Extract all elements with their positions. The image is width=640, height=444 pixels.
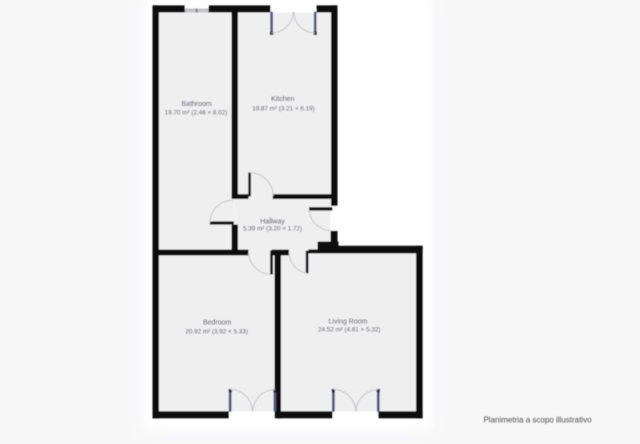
svg-text:Bathroom: Bathroom (181, 101, 212, 108)
svg-text:19.70 m² (2.46 × 8.02): 19.70 m² (2.46 × 8.02) (165, 110, 227, 117)
svg-text:24.52 m² (4.61 × 5.32): 24.52 m² (4.61 × 5.32) (318, 326, 380, 333)
svg-text:5.39 m² (3.20 × 1.72): 5.39 m² (3.20 × 1.72) (243, 226, 302, 233)
svg-text:Living Room: Living Room (329, 319, 368, 326)
svg-text:20.92 m² (3.92 × 5.33): 20.92 m² (3.92 × 5.33) (185, 329, 247, 336)
svg-text:Hallway: Hallway (260, 218, 285, 225)
svg-text:Planimetria a scopo illustrati: Planimetria a scopo illustrativo (483, 416, 592, 425)
svg-text:Bedroom: Bedroom (203, 319, 232, 326)
svg-text:19.87 m² (3.21 × 6.19): 19.87 m² (3.21 × 6.19) (252, 105, 314, 112)
svg-text:Kitchen: Kitchen (271, 96, 294, 103)
